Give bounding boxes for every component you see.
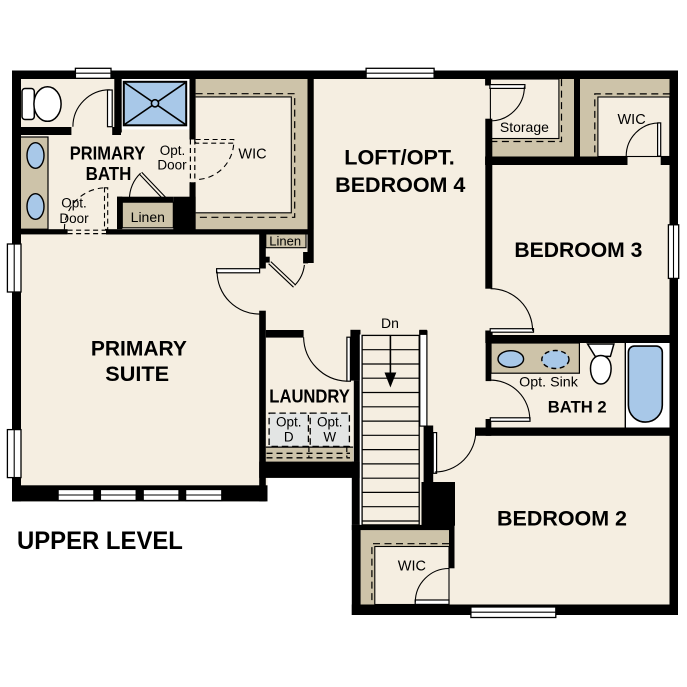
svg-text:Opt.: Opt. — [61, 196, 87, 211]
svg-text:Dn: Dn — [381, 315, 399, 331]
svg-text:WIC: WIC — [618, 112, 646, 128]
svg-text:SUITE: SUITE — [105, 363, 169, 386]
svg-text:W: W — [323, 430, 336, 445]
svg-text:UPPER LEVEL: UPPER LEVEL — [17, 528, 183, 555]
svg-text:Door: Door — [157, 158, 187, 173]
svg-text:D: D — [284, 430, 294, 445]
svg-text:Opt.: Opt. — [317, 414, 343, 429]
svg-text:Door: Door — [59, 211, 89, 226]
svg-text:BATH 2: BATH 2 — [548, 397, 607, 416]
svg-text:PRIMARY: PRIMARY — [91, 337, 187, 360]
svg-text:PRIMARY: PRIMARY — [70, 143, 146, 164]
svg-text:Storage: Storage — [500, 119, 549, 135]
svg-text:LOFT/OPT.: LOFT/OPT. — [344, 147, 455, 170]
svg-text:BEDROOM 2: BEDROOM 2 — [497, 506, 627, 530]
svg-text:WIC: WIC — [398, 559, 426, 575]
svg-text:Linen: Linen — [131, 209, 165, 225]
svg-text:Linen: Linen — [269, 234, 301, 249]
svg-text:Opt.: Opt. — [276, 414, 302, 429]
svg-text:WIC: WIC — [238, 147, 266, 163]
svg-text:Opt.: Opt. — [160, 143, 186, 158]
svg-text:BEDROOM 3: BEDROOM 3 — [514, 238, 642, 262]
svg-text:BATH: BATH — [86, 163, 132, 184]
svg-text:LAUNDRY: LAUNDRY — [269, 386, 350, 407]
svg-text:Opt. Sink: Opt. Sink — [519, 374, 579, 390]
svg-text:BEDROOM 4: BEDROOM 4 — [335, 174, 465, 197]
